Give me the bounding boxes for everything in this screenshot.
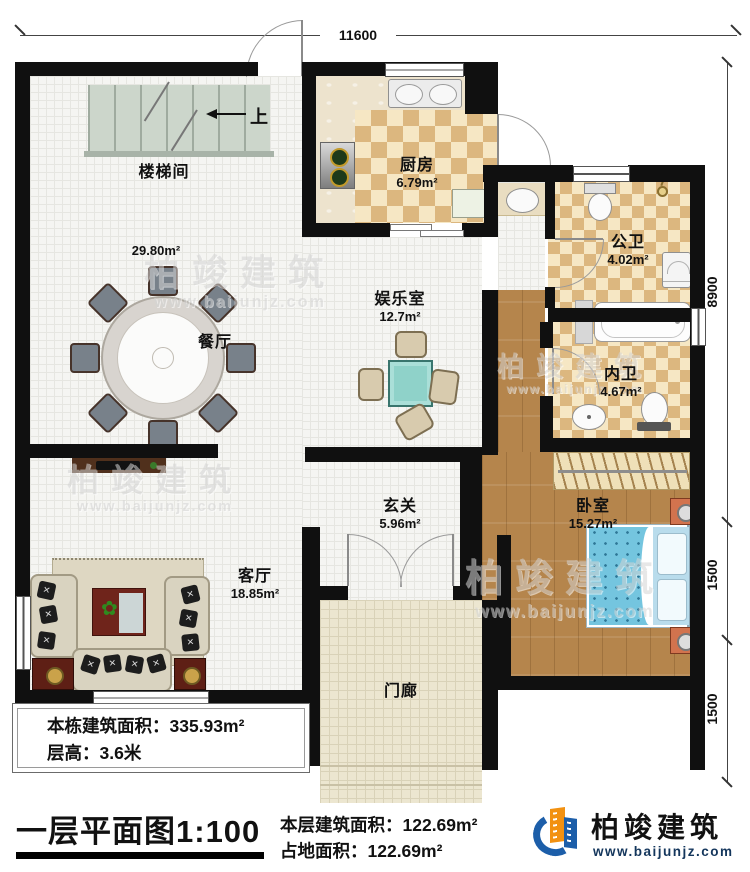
wall-segment (690, 690, 705, 770)
dining-chair (148, 266, 178, 296)
wall-segment (305, 447, 482, 462)
logo-windows (567, 822, 571, 845)
dim-tick (730, 24, 741, 35)
plan-title: 一层平面图1:100 (16, 806, 260, 851)
wall-segment (482, 690, 498, 770)
building-total-area: 本栋建筑面积：335.93m² (47, 713, 309, 740)
sofa-pillow (103, 654, 122, 673)
wall-segment (497, 535, 511, 676)
wash-counter (498, 183, 545, 216)
game-table (388, 360, 433, 407)
dimension-top-label: 11600 (320, 27, 396, 43)
plant-icon (150, 462, 157, 469)
table-lamp (46, 667, 64, 685)
door-leaf (452, 534, 454, 586)
sofa-pillow (36, 580, 56, 600)
title-underline (16, 852, 264, 859)
wash-basin (506, 188, 539, 213)
tv (96, 461, 140, 470)
floor-plan-canvas: 11600 8900 1500 1500 上 (0, 0, 750, 872)
sofa-pillow (39, 605, 59, 625)
sofa-pillow (181, 633, 200, 652)
sofa-bottom (72, 648, 172, 692)
stove-burner (330, 148, 349, 167)
toilet-inner (641, 392, 668, 426)
dimension-right-label-8900: 8900 (704, 267, 720, 317)
room-label-porch: 门廊 (384, 677, 418, 701)
corner-table (32, 658, 74, 690)
dimension-line-right (727, 62, 728, 782)
game-chair (395, 331, 427, 358)
wall-segment (482, 676, 690, 690)
brand-url: www.baijunjz.com (593, 844, 734, 859)
game-chair (358, 368, 384, 401)
stairs-up-arrow (216, 113, 246, 115)
sink-basin (429, 84, 457, 105)
washing-machine (662, 252, 691, 288)
floor-area: 本层建筑面积：122.69m² (280, 812, 477, 837)
floor-porch (320, 600, 482, 803)
porch-step-edge (320, 765, 482, 767)
wall-segment (302, 76, 316, 237)
sofa-pillow (180, 584, 201, 605)
room-label-stairwell: 楼梯间 (138, 158, 189, 182)
sofa-pillow (125, 655, 145, 675)
wardrobe-rod (558, 470, 687, 473)
room-label-foyer: 玄关 5.96m² (379, 492, 420, 531)
wall-segment (545, 182, 555, 239)
wall-segment (548, 308, 690, 322)
door-arc-kitchen-side (498, 114, 551, 166)
wall-segment (460, 455, 482, 600)
plant-icon: ✿ (101, 599, 118, 619)
window-living-west (16, 596, 31, 670)
logo-building-blue-icon (564, 817, 577, 849)
brand-logo-icon (533, 806, 585, 860)
sofa-left (30, 574, 78, 658)
stairs-up-label: 上 (250, 103, 268, 129)
toilet-public (584, 183, 614, 221)
coffee-table-mirror (119, 593, 143, 633)
wardrobe (553, 452, 690, 490)
window-kitchen (385, 63, 464, 77)
washer-line (663, 281, 692, 282)
pillow (657, 579, 687, 621)
corner-table (174, 658, 206, 690)
stairs (88, 85, 270, 153)
wall-segment (545, 287, 555, 308)
sink-basin (395, 84, 423, 105)
brand-logo: 柏竣建筑 www.baijunjz.com (533, 800, 743, 868)
bath-basin (572, 404, 606, 430)
room-label-living: 客厅 18.85m² (231, 562, 279, 601)
toilet-inner-base (637, 422, 671, 431)
wall-segment (540, 322, 553, 348)
shower-head-icon (657, 186, 668, 197)
wall-segment (540, 438, 690, 452)
sofa-pillow (80, 654, 101, 675)
wall-segment (465, 62, 498, 114)
coffee-table: ✿ (92, 588, 146, 636)
wall-segment (302, 223, 390, 237)
toilet-bowl (588, 193, 612, 221)
basin-drain (587, 415, 591, 419)
window-public-bath (573, 166, 630, 182)
dimension-right-label-1500a: 1500 (704, 553, 720, 597)
wall-segment (628, 165, 705, 182)
info-box: 本栋建筑面积：335.93m² 层高：3.6米 (12, 703, 310, 773)
washer-drum (667, 261, 690, 274)
table-lamp (183, 667, 201, 685)
stove-burner (330, 168, 349, 187)
sliding-door-panel (420, 230, 464, 237)
room-label-game-room: 娱乐室 12.7m² (374, 285, 425, 324)
kitchen-sink (388, 79, 462, 108)
dim-tick (14, 24, 25, 35)
room-label-kitchen: 厨房 6.79m² (396, 151, 437, 190)
tub-panel (575, 300, 593, 344)
wall-segment (482, 290, 498, 455)
wall-segment (453, 586, 482, 600)
door-leaf (347, 534, 349, 586)
bed (586, 524, 690, 628)
wall-segment (15, 444, 218, 458)
dimension-right-label-1500b: 1500 (704, 687, 720, 731)
dining-chair (70, 343, 100, 373)
room-label-inner-bath: 内卫 4.67m² (600, 360, 641, 399)
brand-name: 柏竣建筑 (591, 806, 723, 846)
window-inner-bath (691, 308, 706, 346)
footprint-area: 占地面积：122.69m² (280, 838, 442, 863)
wall-segment (540, 396, 553, 438)
floor-height: 层高：3.6米 (47, 740, 309, 767)
pillow (657, 533, 687, 575)
room-label-public-bath: 公卫 4.02m² (607, 228, 648, 267)
sofa-right (164, 576, 210, 656)
sofa-pillow (179, 609, 199, 629)
sofa-pillow (146, 653, 167, 674)
game-chair (428, 368, 460, 406)
room-label-dining: 餐厅 (198, 328, 232, 352)
door-leaf (497, 114, 499, 165)
wall-segment (302, 586, 348, 600)
door-leaf (552, 348, 554, 394)
stairs-up-arrowhead-icon (206, 109, 217, 119)
area-label-dining: 29.80m² (132, 243, 180, 258)
stairs-landing-rail (84, 151, 274, 157)
sofa-pillow (37, 631, 56, 650)
tv-cabinet (72, 458, 166, 473)
floor-corridor (498, 290, 545, 455)
dining-table-center (152, 347, 174, 369)
kitchen-stove (320, 142, 355, 189)
kitchen-appliance (452, 189, 485, 218)
door-leaf (555, 238, 603, 240)
logo-building-orange-icon (550, 807, 565, 843)
logo-windows (553, 812, 557, 839)
porch-step-edge (320, 784, 482, 786)
wall-segment (690, 182, 705, 690)
room-label-bedroom: 卧室 15.27m² (569, 492, 617, 531)
wall-segment (483, 165, 573, 182)
wall-segment (15, 62, 258, 76)
